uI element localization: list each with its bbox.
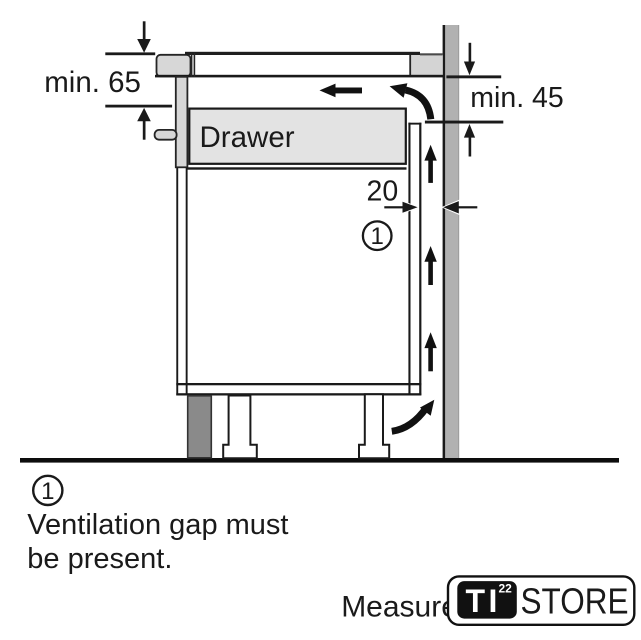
svg-text:min. 45: min. 45 xyxy=(470,82,563,114)
svg-text:1: 1 xyxy=(371,223,384,250)
svg-text:min. 65: min. 65 xyxy=(44,66,141,99)
svg-text:be present.: be present. xyxy=(27,543,172,575)
svg-text:22: 22 xyxy=(499,582,513,596)
svg-text:STORE: STORE xyxy=(521,581,629,622)
svg-text:1: 1 xyxy=(41,478,54,505)
svg-text:20: 20 xyxy=(367,176,399,208)
svg-text:Measure: Measure xyxy=(341,591,458,624)
svg-text:TI: TI xyxy=(466,583,501,619)
svg-text:Drawer: Drawer xyxy=(200,121,295,154)
svg-text:Ventilation gap must: Ventilation gap must xyxy=(27,509,288,541)
